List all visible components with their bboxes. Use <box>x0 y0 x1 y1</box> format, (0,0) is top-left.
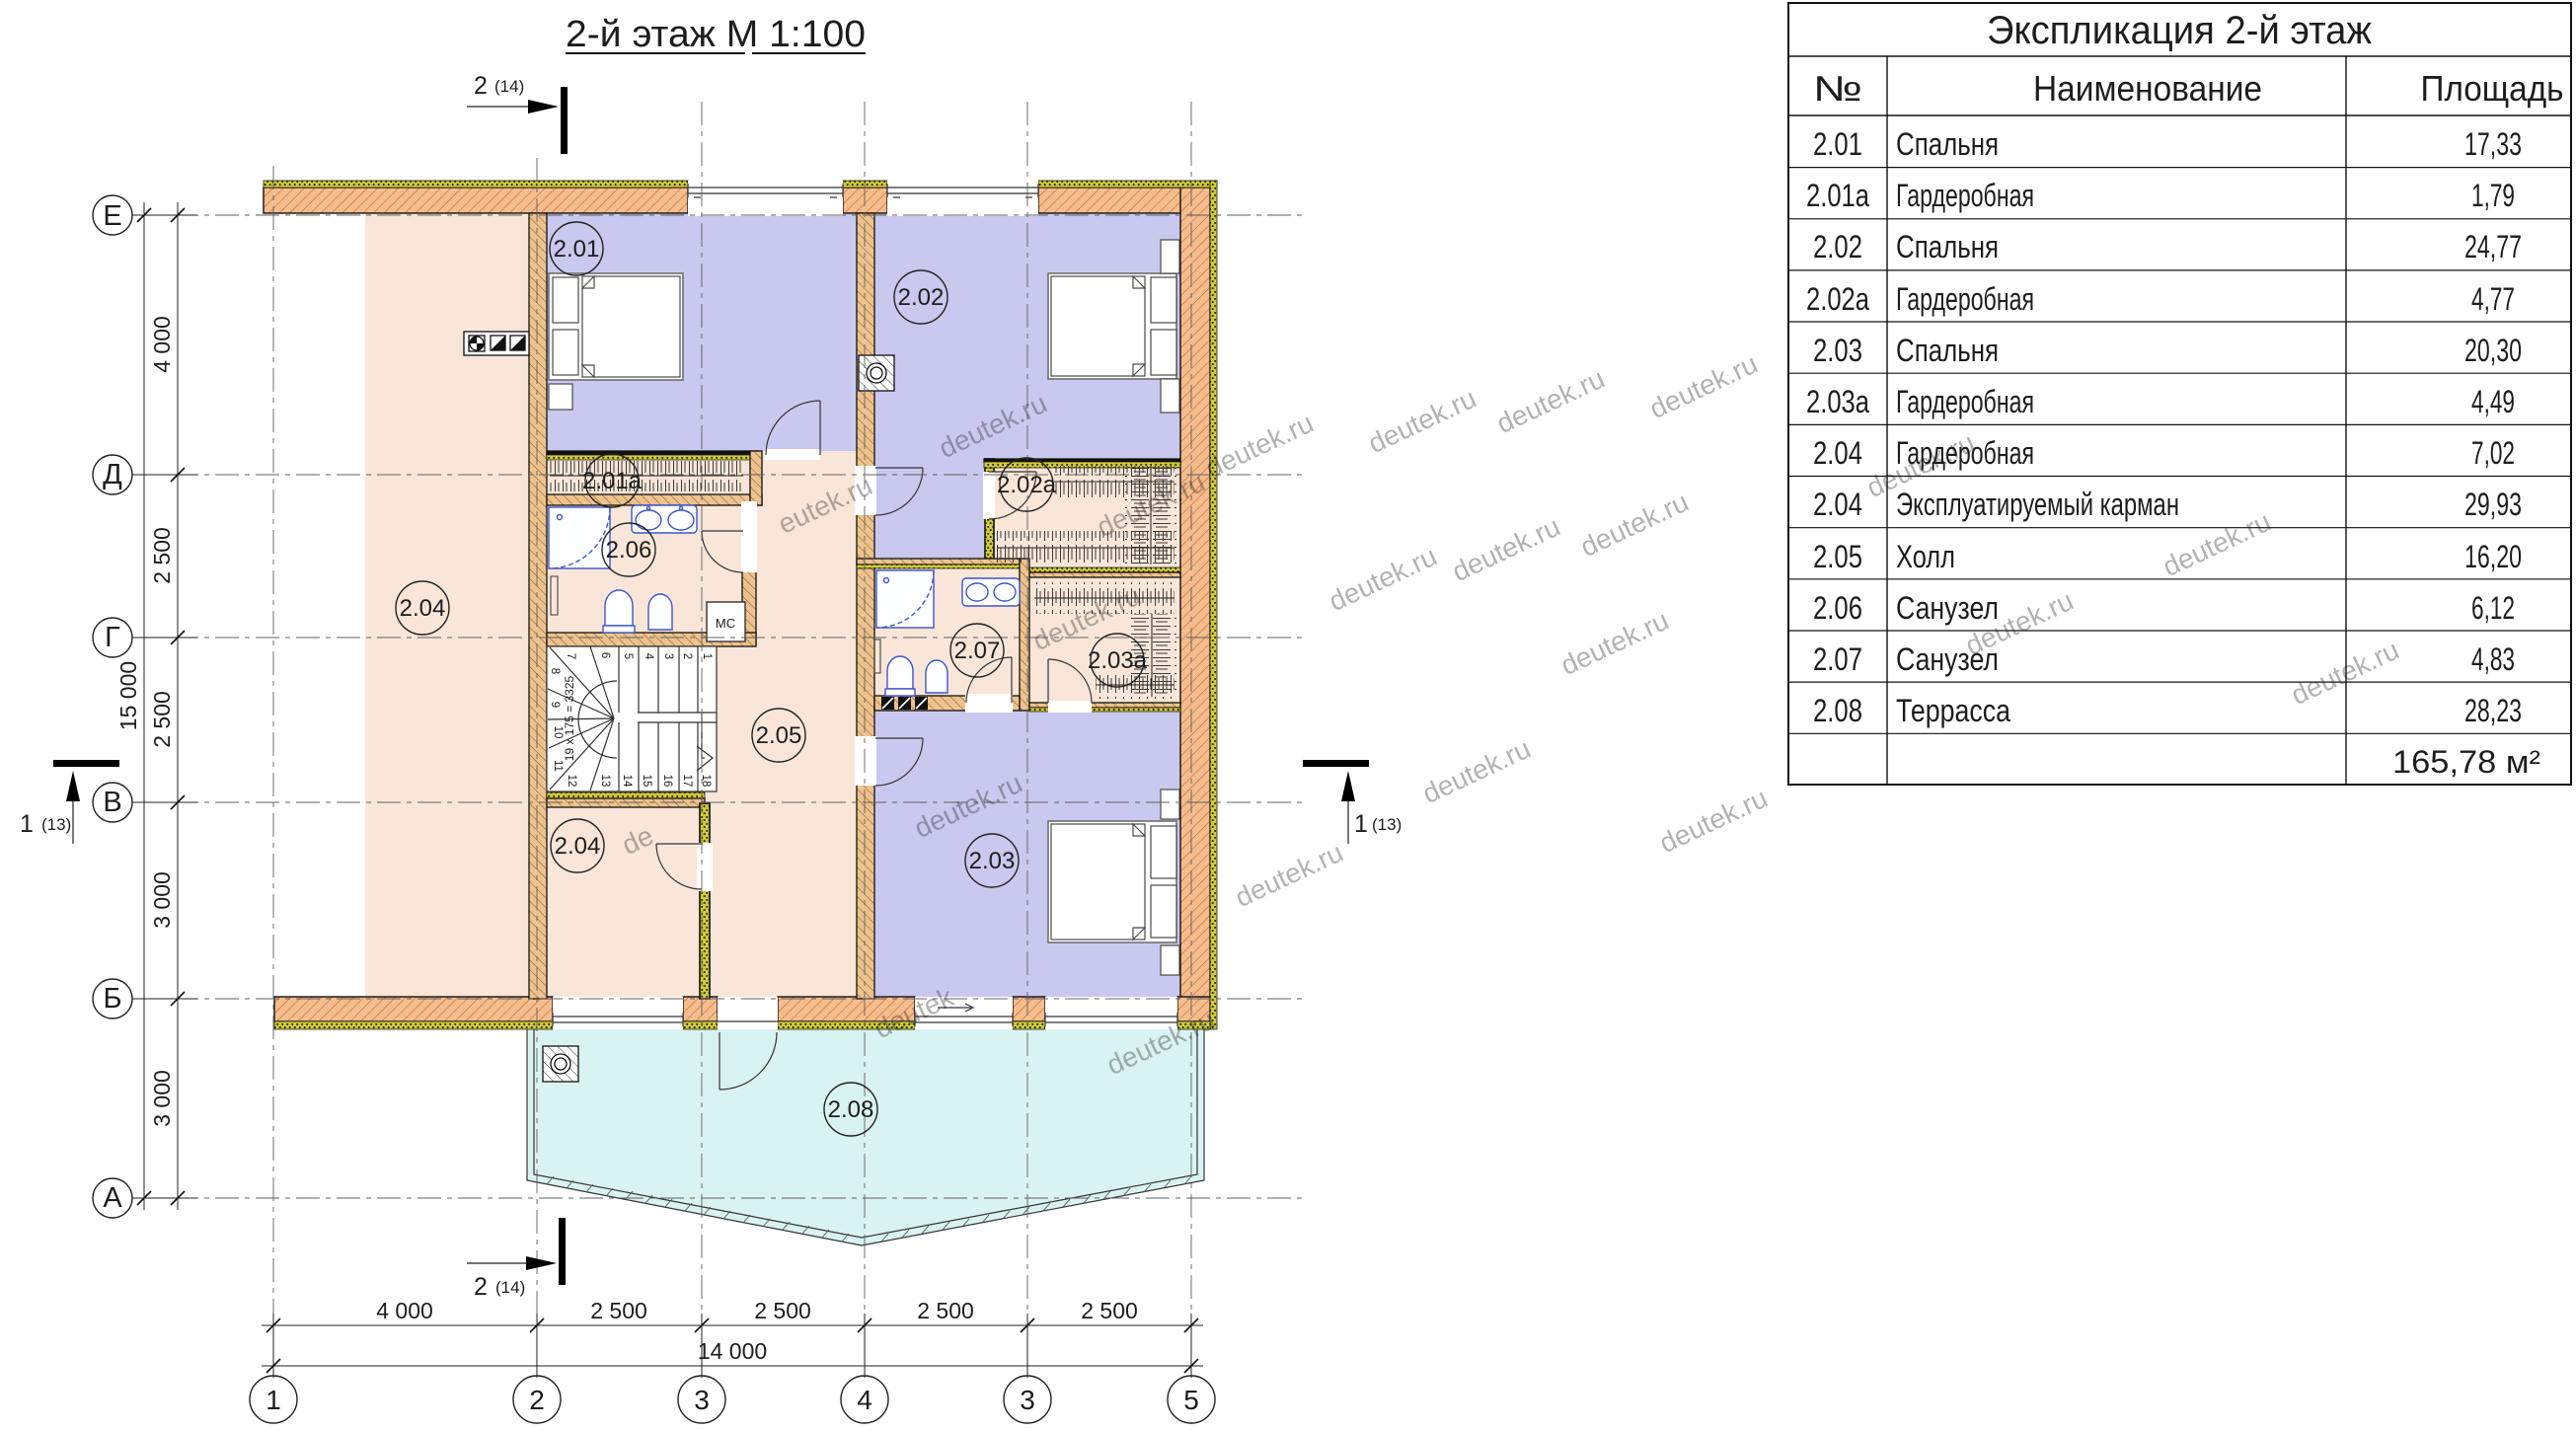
svg-text:4,77: 4,77 <box>2471 281 2515 317</box>
svg-text:Холл: Холл <box>1896 539 1955 574</box>
svg-text:Площадь: Площадь <box>2421 68 2564 109</box>
svg-text:5: 5 <box>1183 1385 1199 1415</box>
svg-text:2: 2 <box>681 653 693 659</box>
svg-text:2-й этаж М 1:100: 2-й этаж М 1:100 <box>566 14 866 55</box>
svg-text:(13): (13) <box>1372 815 1402 834</box>
svg-text:3 000: 3 000 <box>149 1070 175 1127</box>
svg-text:15: 15 <box>641 775 652 788</box>
svg-text:Террасса: Террасса <box>1896 693 2010 728</box>
svg-text:В: В <box>103 787 121 818</box>
svg-text:Спальня: Спальня <box>1896 333 1999 368</box>
svg-text:2 500: 2 500 <box>917 1298 974 1323</box>
svg-text:6,12: 6,12 <box>2471 590 2515 626</box>
svg-text:4,83: 4,83 <box>2471 641 2515 677</box>
svg-text:4,49: 4,49 <box>2471 384 2515 419</box>
svg-text:1: 1 <box>701 653 713 659</box>
svg-text:6: 6 <box>599 652 611 658</box>
svg-text:2.03: 2.03 <box>969 848 1016 874</box>
svg-text:2.04: 2.04 <box>555 833 601 860</box>
svg-text:Санузел: Санузел <box>1896 590 1999 626</box>
svg-text:2.02: 2.02 <box>1813 229 1862 264</box>
svg-text:1: 1 <box>265 1385 281 1415</box>
svg-text:2 500: 2 500 <box>149 527 175 584</box>
svg-text:2.08: 2.08 <box>1813 693 1862 728</box>
svg-text:2 500: 2 500 <box>149 691 175 748</box>
svg-text:2.01: 2.01 <box>554 236 600 263</box>
svg-text:2.03: 2.03 <box>1813 333 1862 368</box>
svg-text:8: 8 <box>549 668 561 674</box>
svg-text:2.02а: 2.02а <box>1806 281 1869 317</box>
svg-text:12: 12 <box>566 775 577 788</box>
svg-text:2.02: 2.02 <box>898 284 945 311</box>
svg-text:МС: МС <box>716 616 735 631</box>
svg-text:3: 3 <box>1020 1385 1035 1415</box>
svg-text:19 x 175 = 3325: 19 x 175 = 3325 <box>563 675 576 761</box>
svg-text:Гардеробная: Гардеробная <box>1896 178 2034 213</box>
svg-text:14: 14 <box>621 775 633 788</box>
svg-text:2.01а: 2.01а <box>1806 178 1869 213</box>
svg-text:2.05: 2.05 <box>1813 539 1862 574</box>
svg-text:2: 2 <box>474 72 488 100</box>
svg-text:3 000: 3 000 <box>149 871 175 929</box>
svg-text:2: 2 <box>474 1273 488 1301</box>
svg-text:2.04: 2.04 <box>1813 487 1862 522</box>
svg-text:1,79: 1,79 <box>2471 178 2515 213</box>
svg-text:2 500: 2 500 <box>590 1298 647 1323</box>
svg-text:1: 1 <box>20 810 34 838</box>
svg-text:13: 13 <box>599 775 611 788</box>
svg-text:4: 4 <box>643 653 654 660</box>
svg-text:2.04: 2.04 <box>1813 435 1862 471</box>
svg-text:16: 16 <box>661 775 673 788</box>
svg-text:2.03а: 2.03а <box>1806 384 1869 419</box>
svg-text:2: 2 <box>529 1385 545 1415</box>
svg-text:2.01а: 2.01а <box>582 468 643 494</box>
svg-text:2.04: 2.04 <box>400 595 446 622</box>
svg-text:Спальня: Спальня <box>1896 229 1999 264</box>
svg-text:20,30: 20,30 <box>2464 333 2522 368</box>
svg-text:2.06: 2.06 <box>1813 590 1862 626</box>
svg-text:4 000: 4 000 <box>149 316 175 373</box>
svg-text:2.05: 2.05 <box>756 722 802 749</box>
svg-text:(14): (14) <box>495 1278 525 1297</box>
svg-text:24,77: 24,77 <box>2464 229 2522 264</box>
svg-text:5: 5 <box>622 653 634 659</box>
svg-text:Наименование: Наименование <box>2033 68 2262 109</box>
svg-text:Е: Е <box>103 200 121 232</box>
svg-text:2.08: 2.08 <box>828 1096 874 1123</box>
svg-text:17: 17 <box>681 775 693 788</box>
svg-text:7,02: 7,02 <box>2471 435 2515 471</box>
svg-text:2 500: 2 500 <box>1081 1298 1138 1323</box>
svg-text:2.03а: 2.03а <box>1088 647 1148 674</box>
svg-text:4 000: 4 000 <box>376 1298 433 1323</box>
svg-text:9: 9 <box>549 702 561 708</box>
svg-text:165,78 м²: 165,78 м² <box>2392 744 2540 780</box>
svg-text:Г: Г <box>105 622 120 653</box>
svg-text:15 000: 15 000 <box>115 661 141 730</box>
svg-text:4: 4 <box>857 1385 872 1415</box>
svg-text:1: 1 <box>1354 810 1368 838</box>
svg-text:11: 11 <box>552 760 564 772</box>
svg-text:7: 7 <box>565 653 576 659</box>
svg-text:(14): (14) <box>494 77 524 96</box>
svg-text:Экспликация 2-й этаж: Экспликация 2-й этаж <box>1987 9 2372 52</box>
svg-text:3: 3 <box>694 1385 710 1415</box>
svg-text:2.07: 2.07 <box>954 638 1001 664</box>
svg-text:Д: Д <box>103 459 122 490</box>
svg-text:2.07: 2.07 <box>1813 641 1862 677</box>
svg-text:№: № <box>1813 68 1862 109</box>
svg-text:Гардеробная: Гардеробная <box>1896 281 2034 317</box>
svg-text:3: 3 <box>662 653 674 659</box>
svg-text:2 500: 2 500 <box>754 1298 811 1323</box>
svg-text:17,33: 17,33 <box>2464 126 2522 162</box>
svg-text:2.06: 2.06 <box>606 537 652 564</box>
svg-text:Спальня: Спальня <box>1896 126 1999 162</box>
svg-text:Б: Б <box>103 983 121 1015</box>
svg-text:2.02а: 2.02а <box>997 472 1057 498</box>
svg-text:Эксплуатируемый карман: Эксплуатируемый карман <box>1896 487 2179 522</box>
svg-text:16,20: 16,20 <box>2464 539 2522 574</box>
svg-text:28,23: 28,23 <box>2464 693 2522 728</box>
svg-text:А: А <box>103 1182 122 1214</box>
svg-text:10: 10 <box>552 726 564 739</box>
svg-text:(13): (13) <box>41 815 71 834</box>
svg-text:29,93: 29,93 <box>2464 487 2522 522</box>
svg-text:Гардеробная: Гардеробная <box>1896 384 2034 419</box>
svg-text:14 000: 14 000 <box>698 1338 767 1364</box>
svg-text:2.01: 2.01 <box>1813 126 1862 162</box>
